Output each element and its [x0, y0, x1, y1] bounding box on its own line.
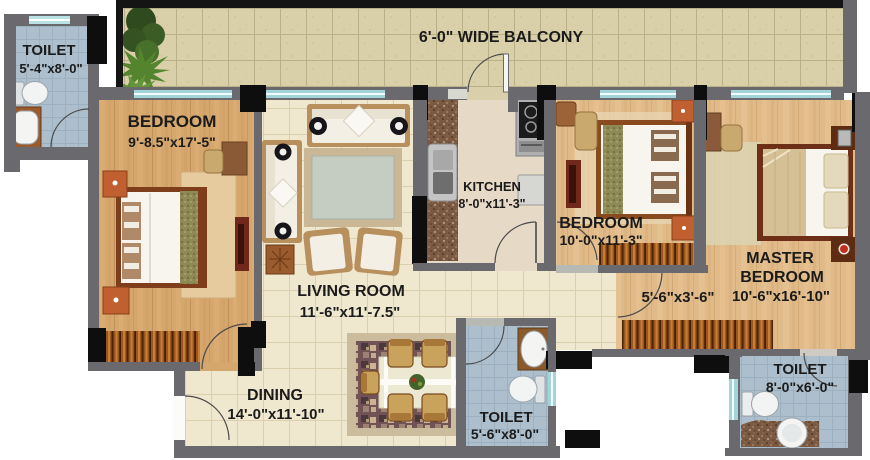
svg-text:MASTER: MASTER — [746, 250, 814, 267]
svg-text:TOILET: TOILET — [773, 361, 826, 378]
svg-text:DINING: DINING — [247, 387, 303, 404]
svg-text:14'-0"x11'-10": 14'-0"x11'-10" — [227, 406, 324, 423]
svg-text:11'-6"x11'-7.5": 11'-6"x11'-7.5" — [300, 304, 401, 321]
svg-text:BEDROOM: BEDROOM — [559, 215, 643, 232]
svg-text:KITCHEN: KITCHEN — [463, 179, 521, 194]
svg-text:BEDROOM: BEDROOM — [740, 269, 824, 286]
svg-text:8'-0"x6'-0": 8'-0"x6'-0" — [766, 379, 834, 395]
svg-text:5'-4"x8'-0": 5'-4"x8'-0" — [19, 61, 82, 76]
svg-text:10'-0"x11'-3": 10'-0"x11'-3" — [560, 232, 643, 248]
svg-text:LIVING ROOM: LIVING ROOM — [297, 283, 405, 300]
svg-text:10'-6"x16'-10": 10'-6"x16'-10" — [732, 288, 830, 305]
svg-text:TOILET: TOILET — [22, 42, 75, 59]
svg-text:8'-0"x11'-3": 8'-0"x11'-3" — [458, 197, 525, 211]
svg-text:5'-6"x3'-6": 5'-6"x3'-6" — [641, 289, 714, 306]
svg-text:BEDROOM: BEDROOM — [128, 112, 217, 131]
svg-text:TOILET: TOILET — [479, 409, 532, 426]
svg-text:9'-8.5"x17'-5": 9'-8.5"x17'-5" — [128, 134, 216, 150]
svg-text:6'-0" WIDE BALCONY: 6'-0" WIDE BALCONY — [419, 29, 584, 46]
svg-text:5'-6"x8'-0": 5'-6"x8'-0" — [471, 426, 539, 442]
